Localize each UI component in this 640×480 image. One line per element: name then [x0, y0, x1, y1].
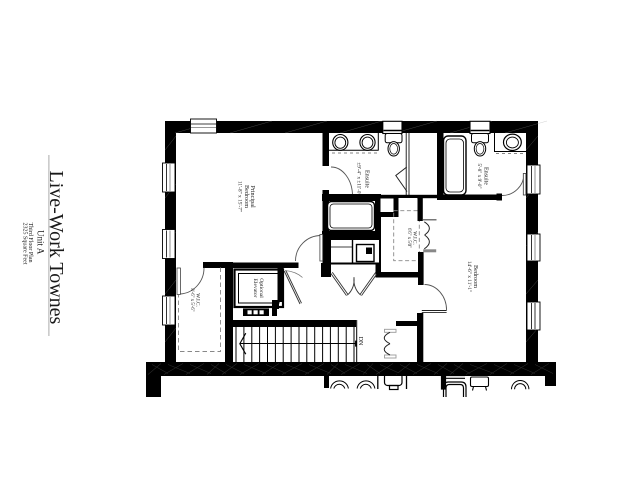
svg-text:14'-6" x 11'-1": 14'-6" x 11'-1" [466, 261, 472, 292]
svg-text:Live-Work Townes: Live-Work Townes [45, 171, 67, 325]
svg-text:Elevator: Elevator [252, 279, 258, 298]
svg-text:Ensuite: Ensuite [482, 167, 488, 185]
svg-text:2325 Square Feet: 2325 Square Feet [22, 223, 28, 265]
svg-text:Bedroom: Bedroom [243, 185, 250, 208]
svg-text:±9'-4" x ±11'-0": ±9'-4" x ±11'-0" [355, 162, 361, 195]
svg-text:5'-8" x 9'-0": 5'-8" x 9'-0" [476, 163, 482, 188]
svg-text:Bedroom: Bedroom [472, 265, 479, 288]
svg-text:W.I.C.: W.I.C. [411, 231, 417, 245]
svg-text:Ensuite: Ensuite [363, 170, 369, 188]
svg-text:W.I.C.: W.I.C. [195, 293, 201, 307]
svg-text:11'-8" x 15'-7": 11'-8" x 15'-7" [236, 181, 242, 212]
svg-text:8'-6" x 5'-6": 8'-6" x 5'-6" [189, 288, 194, 311]
svg-text:Unit A: Unit A [35, 230, 45, 255]
svg-text:DN: DN [357, 337, 363, 346]
svg-text:6'6" x 5'0": 6'6" x 5'0" [406, 228, 411, 248]
